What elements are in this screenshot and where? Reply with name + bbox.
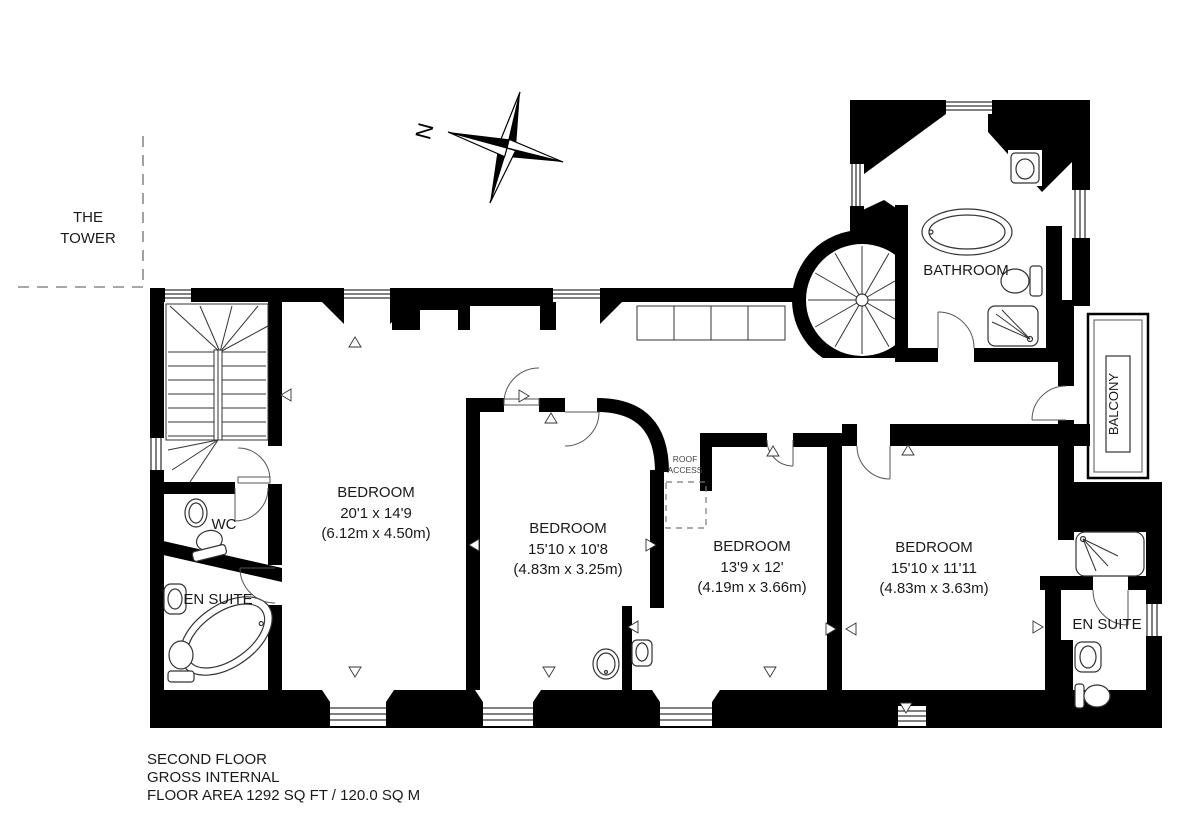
balcony-label: BALCONY xyxy=(1106,373,1121,435)
bedroom-3-size-imperial: 13'9 x 12' xyxy=(720,559,783,576)
roof-access-label-line1: ROOF xyxy=(673,454,698,464)
ensuite-left-label: EN SUITE xyxy=(183,591,252,608)
ensuite-right-label: EN SUITE xyxy=(1072,616,1141,633)
bedroom-3-size-metric: (4.19m x 3.66m) xyxy=(697,579,806,596)
bedroom-4-size-metric: (4.83m x 3.63m) xyxy=(879,580,988,597)
footer-line3: FLOOR AREA 1292 SQ FT / 120.0 SQ M xyxy=(147,787,420,804)
floor-plan: N THE TOWER BEDROOM 20'1 x 14'9 (6.12m x… xyxy=(0,0,1200,818)
ensuite-right-sink-icon xyxy=(1075,642,1101,672)
bedroom-1-size-metric: (6.12m x 4.50m) xyxy=(321,525,430,542)
basin-icon xyxy=(593,649,619,679)
footer-line1: SECOND FLOOR xyxy=(147,751,267,768)
bedroom-2-size-metric: (4.83m x 3.25m) xyxy=(513,561,622,578)
bathroom-shower-icon xyxy=(988,306,1038,346)
tower-label-line2: TOWER xyxy=(60,230,116,247)
footer-line2: GROSS INTERNAL xyxy=(147,769,280,786)
bedroom-3-name: BEDROOM xyxy=(713,538,791,555)
bedroom-2-name: BEDROOM xyxy=(529,520,607,537)
bedroom-2-size-imperial: 15'10 x 10'8 xyxy=(528,541,608,558)
bedroom-1-name: BEDROOM xyxy=(337,484,415,501)
bedroom-1-size-imperial: 20'1 x 14'9 xyxy=(340,505,412,522)
wc-label: WC xyxy=(212,516,237,533)
wc-sink-icon xyxy=(185,499,207,527)
small-sink-icon xyxy=(632,640,652,666)
bedroom-4-size-imperial: 15'10 x 11'11 xyxy=(891,560,977,577)
bathroom-sink-icon xyxy=(1011,153,1039,183)
bathroom-label: BATHROOM xyxy=(923,262,1009,279)
ensuite-left-toilet-icon xyxy=(168,641,194,682)
bedroom-4-name: BEDROOM xyxy=(895,539,973,556)
tower-label-line1: THE xyxy=(73,209,103,226)
roof-access-label-line2: ACCESS xyxy=(668,465,703,475)
ensuite-right-shower-icon xyxy=(1076,532,1144,576)
ensuite-right-toilet-icon xyxy=(1075,684,1110,708)
bathtub-icon xyxy=(922,209,1012,255)
